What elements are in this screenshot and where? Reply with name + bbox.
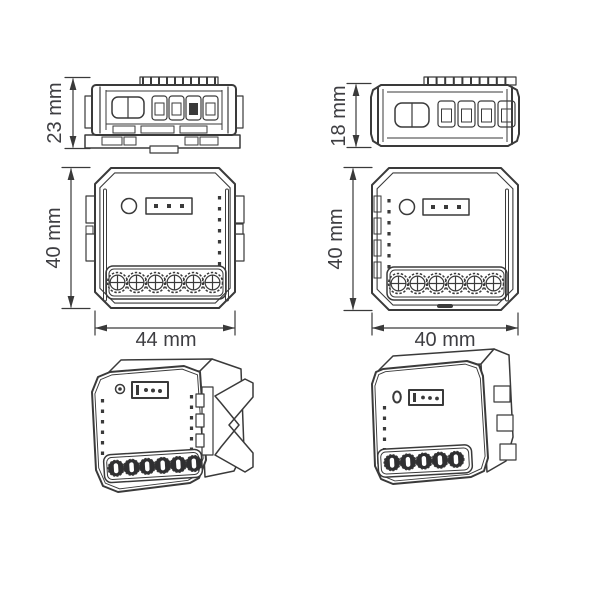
dim-device-a-depth: 23 mm: [44, 78, 90, 149]
dimensional-drawing: 23 mm: [0, 0, 600, 600]
dim-label-height-a: 40 mm: [43, 207, 65, 268]
dim-label-width-a: 44 mm: [135, 329, 196, 351]
terminal-block: [103, 449, 203, 483]
device-a-3d-view: [92, 359, 253, 492]
terminal-block: [377, 445, 472, 478]
bottom-notch: [437, 304, 453, 308]
device-b-side-view: [371, 77, 519, 146]
device-a-side-view: [85, 77, 243, 153]
body-outline: [371, 85, 519, 146]
dim-label-depth-b: 18 mm: [328, 85, 350, 146]
dim-label-width-b: 40 mm: [414, 329, 475, 351]
side-clip: [494, 386, 510, 402]
dim-device-b-depth: 18 mm: [328, 84, 371, 148]
dim-label-depth-a: 23 mm: [44, 82, 66, 143]
side-clip: [497, 415, 513, 431]
drawing-canvas: 23 mm: [0, 0, 600, 600]
dim-label-height-b: 40 mm: [325, 208, 347, 269]
device-a-front-view: [86, 168, 244, 308]
dim-device-b-width: 40 mm: [372, 313, 518, 351]
device-b-3d-view: [372, 349, 516, 484]
dim-device-a-width: 44 mm: [95, 311, 235, 351]
dim-device-b-height: 40 mm: [325, 168, 372, 311]
right-tab: [236, 96, 243, 128]
device-b-front-view: [372, 168, 518, 310]
left-tab: [85, 96, 92, 128]
din-foot: [150, 146, 178, 153]
dim-device-a-height: 40 mm: [43, 168, 90, 309]
side-clip: [500, 444, 516, 460]
